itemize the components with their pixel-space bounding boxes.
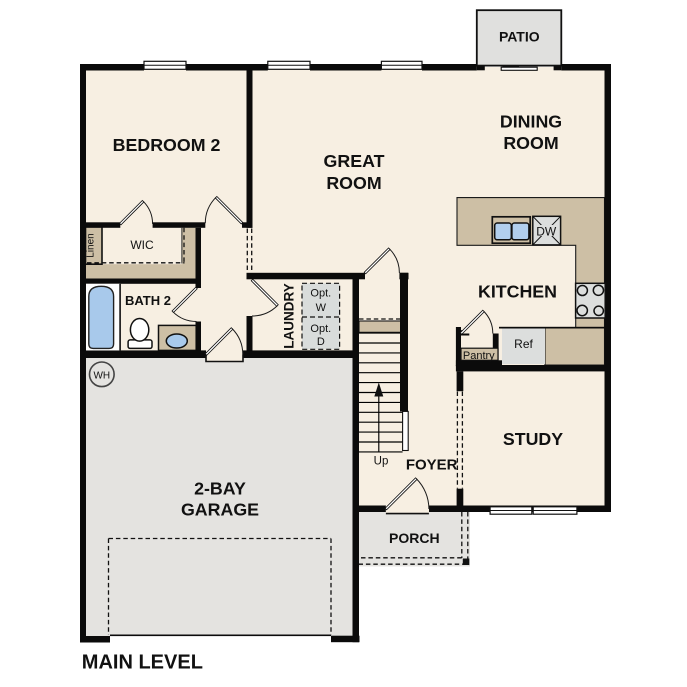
svg-text:LAUNDRY: LAUNDRY — [281, 283, 296, 349]
svg-text:WIC: WIC — [130, 238, 154, 252]
svg-text:PATIO: PATIO — [499, 29, 540, 45]
svg-text:FOYER: FOYER — [406, 457, 458, 474]
svg-text:Up: Up — [374, 456, 389, 468]
svg-text:DINING: DINING — [500, 112, 562, 132]
svg-text:BEDROOM 2: BEDROOM 2 — [113, 135, 221, 155]
svg-text:D: D — [317, 336, 325, 348]
svg-text:ROOM: ROOM — [503, 133, 558, 153]
svg-text:MAIN LEVEL: MAIN LEVEL — [82, 652, 203, 674]
svg-text:DW: DW — [536, 224, 557, 238]
svg-text:Linen: Linen — [86, 233, 97, 257]
svg-text:WH: WH — [93, 370, 110, 381]
svg-text:2-BAY: 2-BAY — [194, 479, 246, 499]
svg-text:Opt.: Opt. — [310, 288, 331, 300]
svg-text:Pantry: Pantry — [463, 350, 495, 362]
svg-text:PORCH: PORCH — [389, 530, 440, 546]
svg-text:STUDY: STUDY — [503, 429, 563, 449]
svg-text:KITCHEN: KITCHEN — [478, 282, 557, 302]
svg-text:GARAGE: GARAGE — [181, 500, 259, 520]
svg-text:W: W — [316, 302, 327, 314]
svg-text:ROOM: ROOM — [326, 173, 381, 193]
svg-text:GREAT: GREAT — [324, 151, 385, 171]
svg-text:BATH 2: BATH 2 — [125, 293, 171, 308]
svg-text:Opt.: Opt. — [310, 323, 331, 335]
svg-text:Ref: Ref — [514, 337, 533, 351]
